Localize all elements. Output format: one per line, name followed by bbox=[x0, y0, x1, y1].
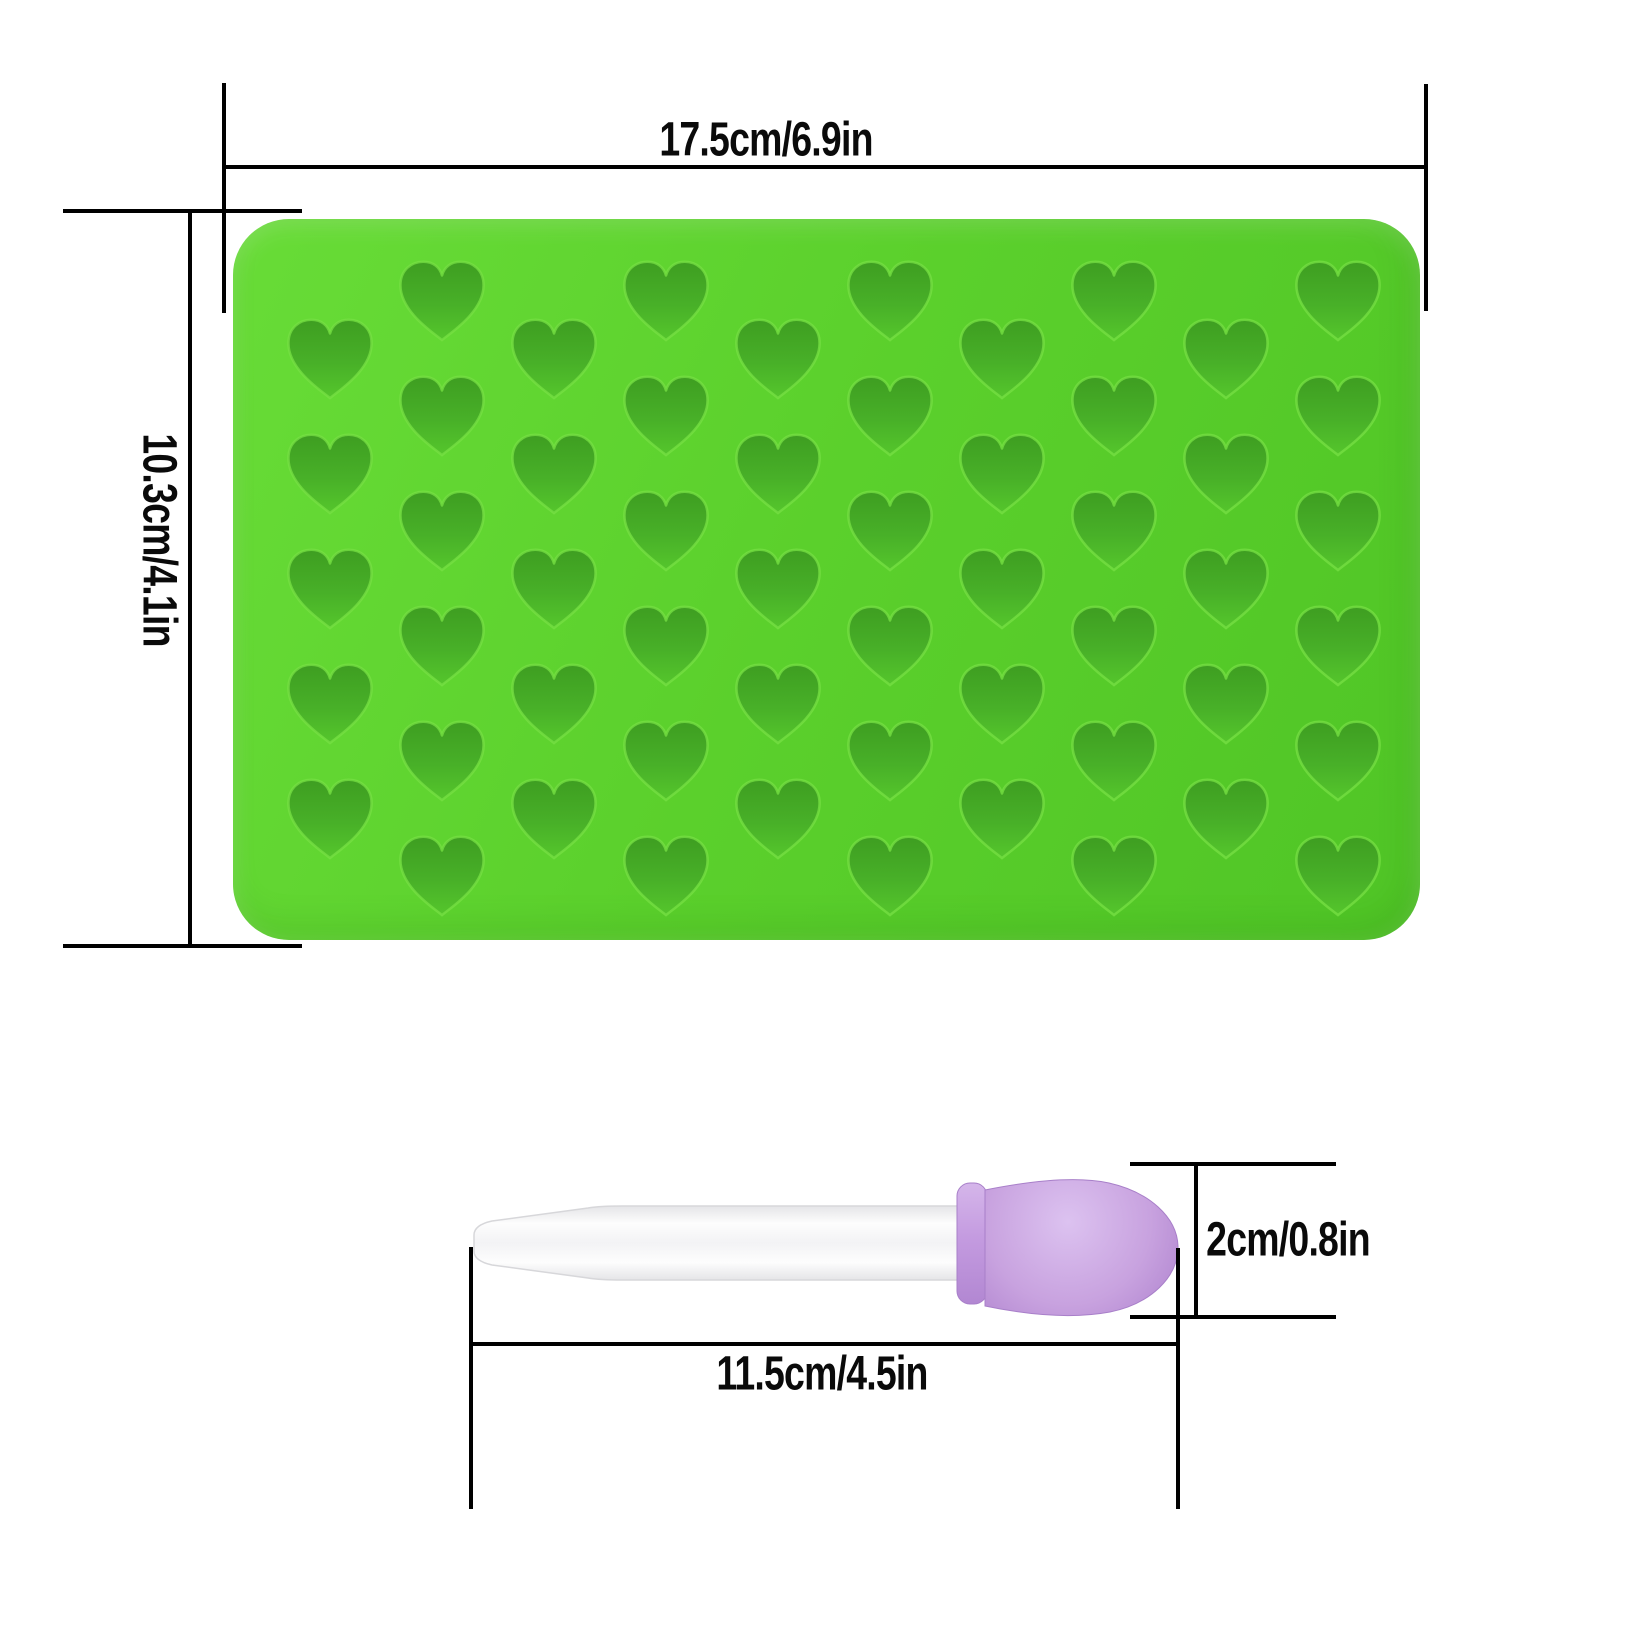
heart-cavity bbox=[736, 665, 819, 743]
heart-cavity bbox=[288, 780, 371, 858]
heart-cavity bbox=[1296, 377, 1379, 455]
dropper-tube bbox=[474, 1206, 966, 1280]
mold-height-dimension-line bbox=[188, 211, 192, 946]
heart-cavity bbox=[1072, 607, 1155, 685]
heart-cavity bbox=[1296, 722, 1379, 800]
liquid-dropper bbox=[430, 1150, 1220, 1330]
heart-cavity bbox=[1296, 607, 1379, 685]
heart-cavity bbox=[512, 320, 595, 398]
heart-cavity bbox=[1184, 435, 1267, 513]
heart-cavity bbox=[1184, 320, 1267, 398]
dropper-length-extension-line-right bbox=[1176, 1248, 1180, 1509]
heart-cavity bbox=[1184, 550, 1267, 628]
dropper-bulb-dimension-label: 2cm/0.8in bbox=[1206, 1213, 1370, 1268]
heart-cavity bbox=[848, 722, 931, 800]
mold-width-extension-line-left bbox=[222, 83, 226, 313]
heart-cavity bbox=[1072, 262, 1155, 340]
heart-cavity bbox=[1184, 665, 1267, 743]
heart-cavity bbox=[512, 780, 595, 858]
product-dimension-diagram: 17.5cm/6.9in 10.3cm/4.1in bbox=[0, 0, 1650, 1650]
heart-cavity bbox=[736, 320, 819, 398]
heart-cavity bbox=[512, 550, 595, 628]
heart-cavity bbox=[960, 320, 1043, 398]
heart-cavity bbox=[1072, 837, 1155, 915]
heart-cavity bbox=[1296, 492, 1379, 570]
mold-height-dimension-label: 10.3cm/4.1in bbox=[132, 433, 187, 646]
dropper-bulb-extension-line-bottom bbox=[1130, 1315, 1336, 1319]
heart-cavity bbox=[400, 492, 483, 570]
heart-cavity bbox=[736, 780, 819, 858]
dropper-length-extension-line-left bbox=[469, 1247, 473, 1509]
heart-cavity bbox=[624, 262, 707, 340]
heart-cavity bbox=[624, 722, 707, 800]
heart-cavity bbox=[960, 780, 1043, 858]
heart-cavity bbox=[960, 665, 1043, 743]
heart-cavity bbox=[736, 550, 819, 628]
heart-cavity bbox=[400, 262, 483, 340]
dropper-length-dimension-line bbox=[471, 1342, 1178, 1346]
mold-width-dimension-line bbox=[224, 165, 1426, 169]
dropper-bulb-dimension-line bbox=[1194, 1164, 1198, 1317]
heart-cavity bbox=[848, 607, 931, 685]
heart-cavity bbox=[288, 550, 371, 628]
heart-cavity bbox=[848, 377, 931, 455]
mold-height-extension-line-top bbox=[63, 209, 302, 213]
heart-cavity bbox=[1072, 722, 1155, 800]
heart-cavity bbox=[736, 435, 819, 513]
heart-cavity bbox=[512, 665, 595, 743]
heart-cavity bbox=[1296, 837, 1379, 915]
heart-cavity bbox=[288, 320, 371, 398]
heart-cavity bbox=[288, 435, 371, 513]
heart-cavity bbox=[848, 837, 931, 915]
dropper-bulb bbox=[985, 1180, 1178, 1316]
heart-cavity bbox=[624, 377, 707, 455]
dropper-bulb-extension-line-top bbox=[1130, 1162, 1336, 1166]
dropper-collar bbox=[957, 1183, 987, 1304]
heart-cavity bbox=[1296, 262, 1379, 340]
dropper-length-dimension-label: 11.5cm/4.5in bbox=[716, 1347, 927, 1402]
heart-cavity bbox=[624, 607, 707, 685]
heart-cavity bbox=[400, 837, 483, 915]
heart-cavity bbox=[512, 435, 595, 513]
heart-cavity bbox=[400, 607, 483, 685]
mold-height-extension-line-bottom bbox=[63, 944, 302, 948]
heart-cavity bbox=[848, 492, 931, 570]
heart-cavity bbox=[1072, 377, 1155, 455]
heart-cavity bbox=[960, 550, 1043, 628]
heart-cavity bbox=[288, 665, 371, 743]
heart-cavity bbox=[400, 377, 483, 455]
mold-width-dimension-label: 17.5cm/6.9in bbox=[659, 113, 872, 168]
heart-cavity-grid bbox=[233, 219, 1420, 940]
mold-width-extension-line-right bbox=[1424, 84, 1428, 311]
heart-cavity bbox=[624, 837, 707, 915]
heart-cavity bbox=[1184, 780, 1267, 858]
heart-cavity bbox=[1072, 492, 1155, 570]
heart-cavity bbox=[960, 435, 1043, 513]
heart-cavity bbox=[848, 262, 931, 340]
heart-cavity bbox=[624, 492, 707, 570]
heart-cavity bbox=[400, 722, 483, 800]
